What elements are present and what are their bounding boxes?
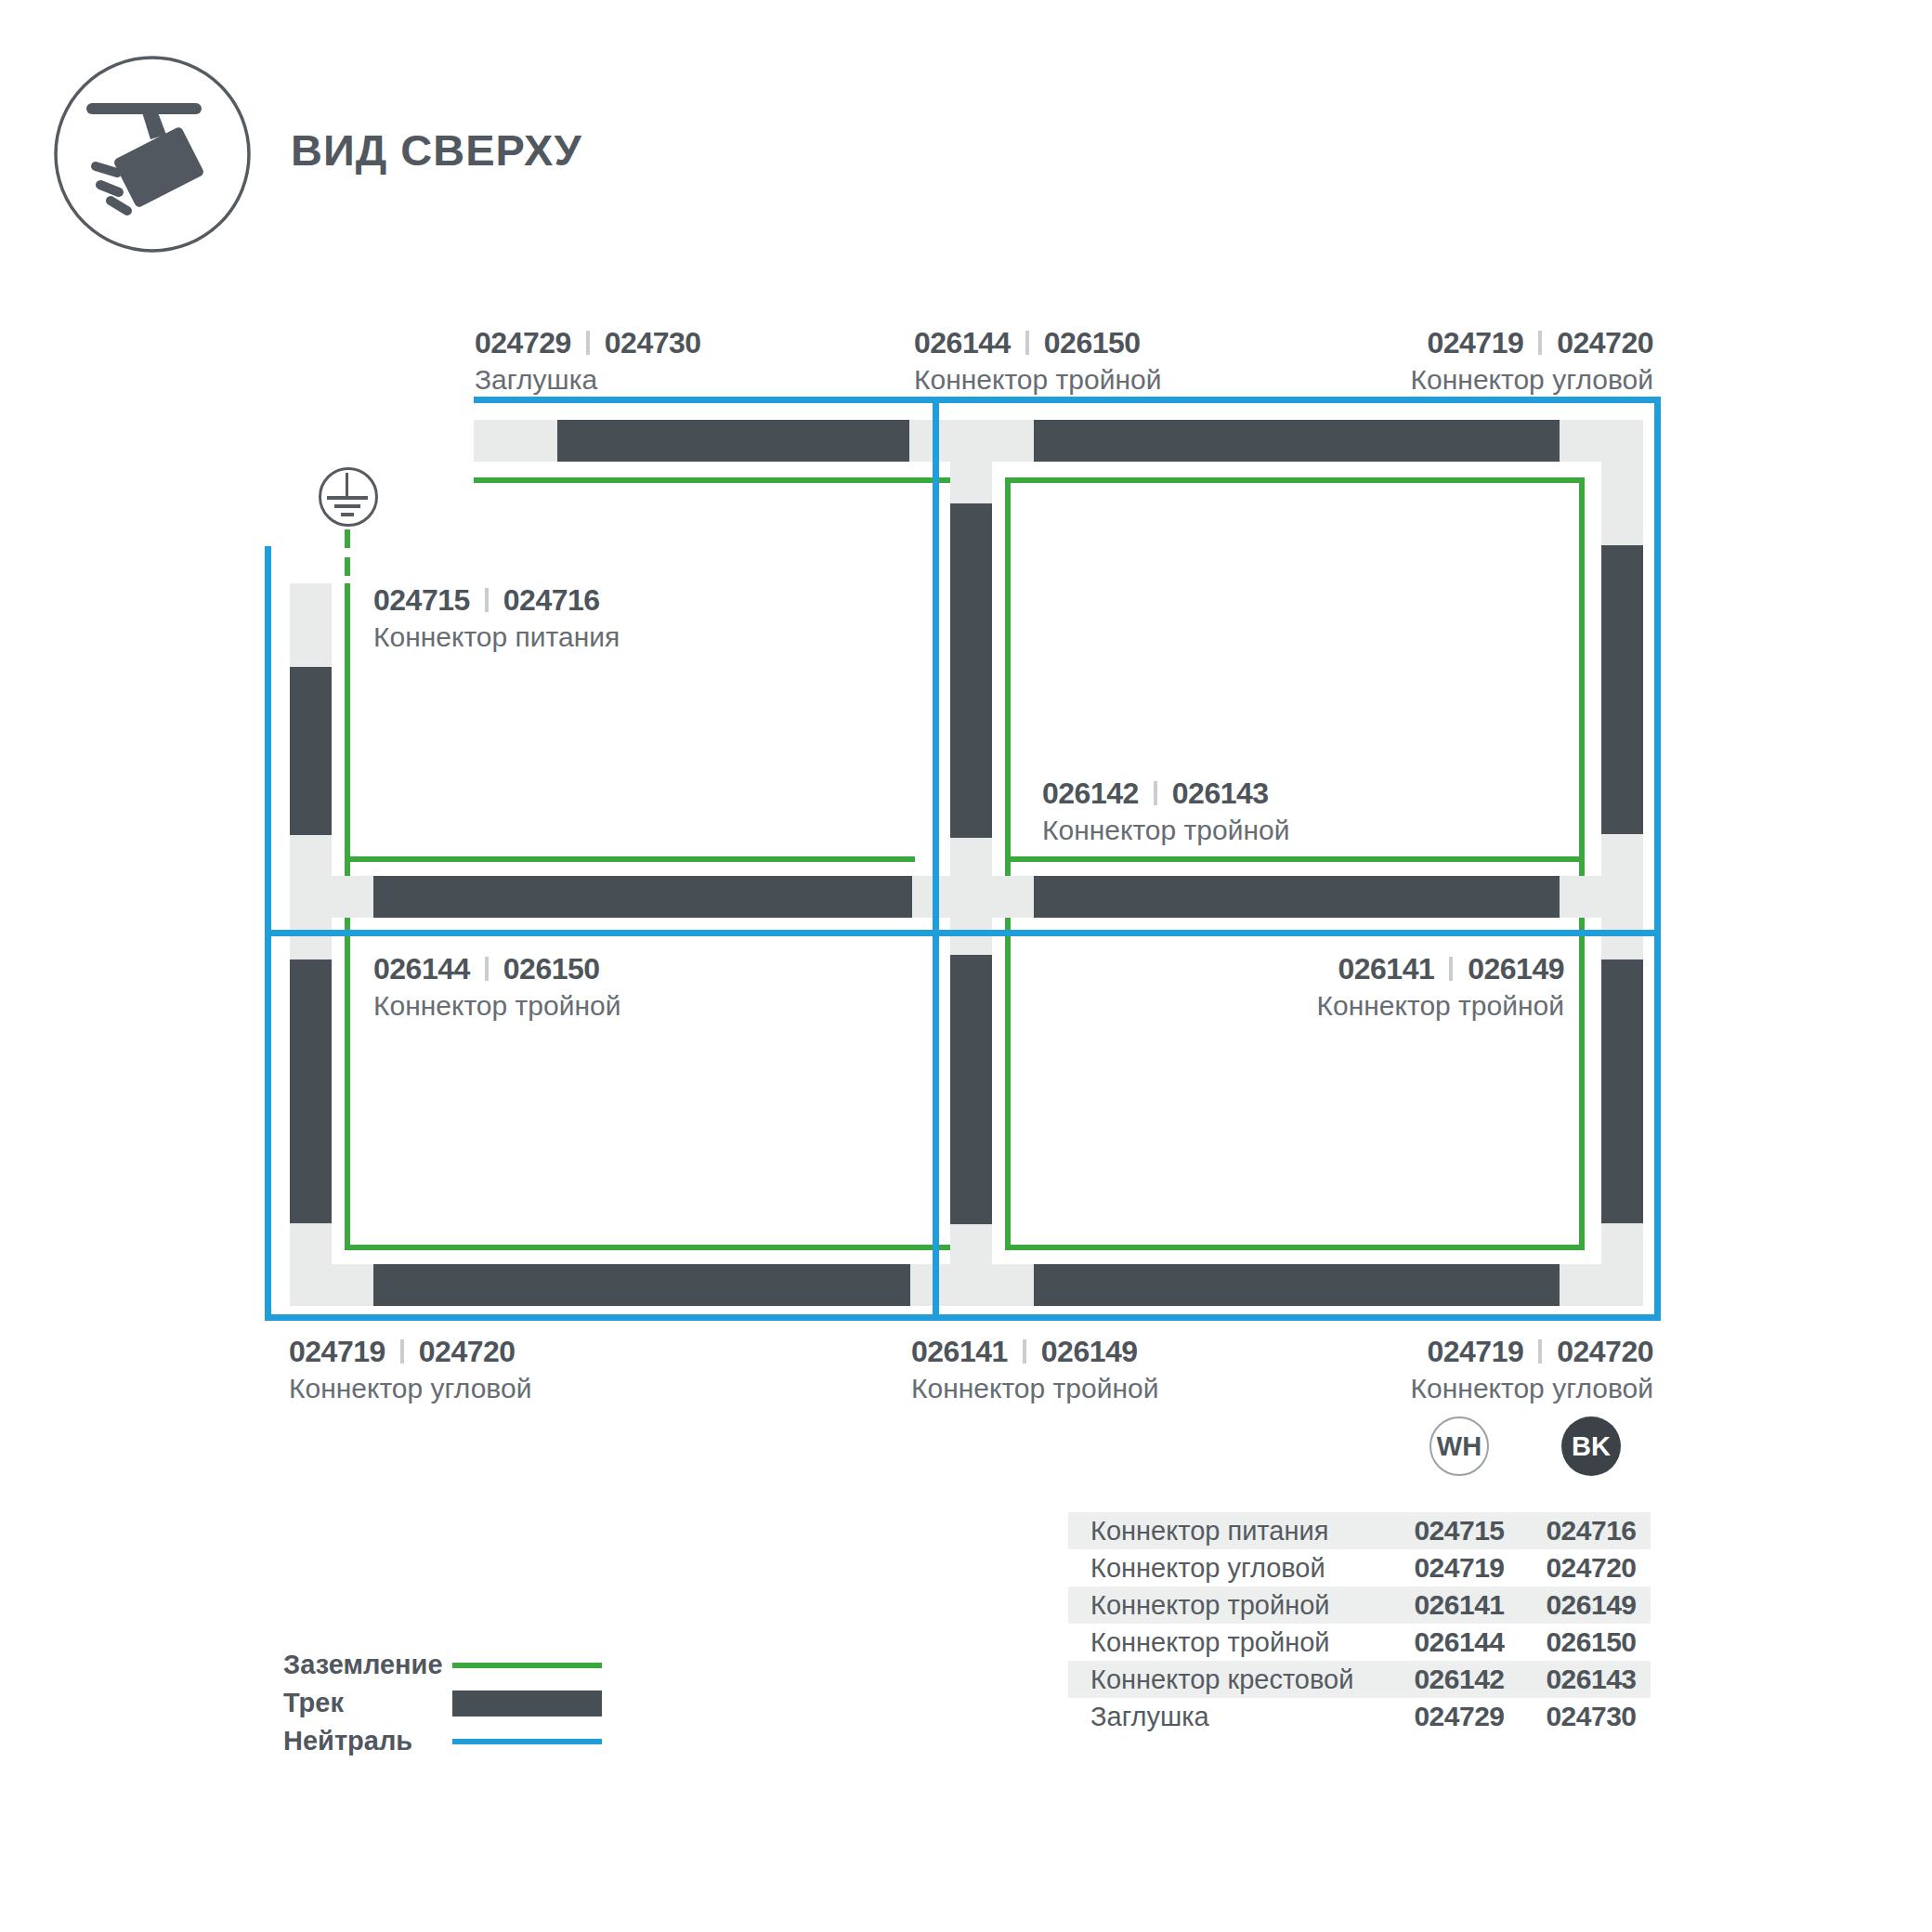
part-number-wh: 024715 (1403, 1512, 1515, 1549)
track-segment (557, 420, 909, 462)
neutral-line (1654, 397, 1661, 1321)
part-number-bk: 026150 (1535, 1624, 1647, 1661)
tee-connector (1601, 834, 1643, 959)
part-number-wh: 026142 (1403, 1661, 1515, 1698)
part-number: 026149 (1041, 1336, 1138, 1367)
power-feed-connector (290, 583, 332, 667)
part-number: 024720 (1557, 327, 1653, 359)
part-number: 024716 (503, 584, 600, 616)
label-tee-top: 026144026150 Коннектор тройной (914, 327, 1161, 395)
part-number: 024719 (1427, 327, 1523, 359)
ground-line (1008, 1245, 1585, 1250)
label-power-connector: 024715024716 Коннектор питания (373, 584, 620, 652)
legend-label: Нейтраль (283, 1726, 452, 1756)
label-tee-bottom: 026141026149 Коннектор тройной (911, 1336, 1158, 1403)
tee-connector (950, 1224, 992, 1264)
label-tee-right-mid: 026141026149 Коннектор тройной (1317, 953, 1564, 1021)
corner-connector (1560, 1264, 1643, 1306)
part-number-bk: 024720 (1535, 1549, 1647, 1586)
label-end-cap: 024729024730 Заглушка (475, 327, 701, 395)
divider (400, 1339, 404, 1364)
neutral-line (265, 1314, 1661, 1321)
track-segment (373, 1264, 910, 1306)
tee-connector (950, 462, 992, 503)
tee-connector (910, 1264, 1034, 1306)
track-segment (373, 876, 912, 918)
part-number-bk: 026149 (1535, 1586, 1647, 1624)
ground-line (1008, 477, 1585, 483)
table-row: Коннектор питания 024715 024716 (1068, 1512, 1651, 1549)
divider (586, 331, 590, 355)
end-cap-connector (474, 420, 557, 462)
neutral-line-swatch (452, 1739, 602, 1744)
page: ВИД СВЕРХУ 024729 (0, 0, 1932, 1932)
track-segment (950, 955, 992, 1224)
divider (1023, 1339, 1026, 1364)
part-name: Коннектор крестовой (1090, 1661, 1353, 1698)
part-number: 026144 (914, 327, 1011, 359)
part-name: Коннектор угловой (1411, 1374, 1653, 1403)
part-number-wh: 024719 (1403, 1549, 1515, 1586)
part-number-wh: 026144 (1403, 1624, 1515, 1661)
part-number: 026142 (1042, 777, 1139, 809)
part-name: Коннектор тройной (911, 1374, 1158, 1403)
part-number: 026149 (1468, 953, 1564, 985)
color-badge-black: BK (1561, 1416, 1621, 1476)
track-segment (950, 503, 992, 838)
part-number: 026141 (1338, 953, 1434, 985)
cross-connector (912, 876, 1034, 918)
divider (1538, 1339, 1542, 1364)
part-number: 024720 (1557, 1336, 1653, 1367)
part-number: 026141 (911, 1336, 1008, 1367)
ground-line (347, 1245, 953, 1250)
corner-connector (1601, 462, 1643, 545)
track-segment (290, 959, 332, 1223)
label-tee-left-mid: 026144026150 Коннектор тройной (373, 953, 620, 1021)
tee-connector (290, 835, 332, 959)
corner-connector (1560, 420, 1643, 462)
part-number-bk: 026143 (1535, 1661, 1647, 1698)
legend-item-neutral: Нейтраль (283, 1722, 602, 1760)
part-name: Коннектор угловой (289, 1374, 531, 1403)
ground-symbol-icon (319, 467, 378, 527)
part-number: 024720 (419, 1336, 516, 1367)
label-cross-center: 026142026143 Коннектор тройной (1042, 777, 1289, 845)
part-name: Заглушка (1090, 1698, 1209, 1735)
track-segment (1034, 876, 1560, 918)
part-number: 026150 (1044, 327, 1141, 359)
part-number: 024729 (475, 327, 571, 359)
label-corner-top-right: 024719024720 Коннектор угловой (1411, 327, 1653, 395)
track-segment (1034, 1264, 1560, 1306)
page-title: ВИД СВЕРХУ (291, 124, 582, 176)
part-name: Коннектор тройной (373, 991, 620, 1021)
divider (1154, 781, 1157, 805)
ground-line-swatch (452, 1663, 602, 1668)
track-segment (1034, 420, 1560, 462)
track-segment (1601, 959, 1643, 1223)
tee-connector (909, 420, 1034, 462)
legend-item-ground: Заземление (283, 1646, 602, 1684)
table-row: Коннектор крестовой 026142 026143 (1068, 1661, 1651, 1698)
ground-line-dash (345, 529, 350, 548)
part-number: 026144 (373, 953, 470, 985)
part-number: 024719 (1427, 1336, 1523, 1367)
ground-line (1579, 477, 1585, 1250)
track-segment (1601, 545, 1643, 834)
part-number: 026143 (1172, 777, 1269, 809)
table-row: Коннектор тройной 026144 026150 (1068, 1624, 1651, 1661)
neutral-line (265, 930, 1661, 936)
legend-label: Трек (283, 1688, 452, 1718)
divider (1538, 331, 1542, 355)
part-name: Коннектор угловой (1411, 365, 1653, 395)
neutral-line (474, 397, 1661, 403)
table-row: Заглушка 024729 024730 (1068, 1698, 1651, 1735)
part-name: Коннектор тройной (914, 365, 1161, 395)
track-swatch (452, 1690, 602, 1717)
ground-line (474, 477, 953, 483)
part-number: 024730 (605, 327, 701, 359)
ground-line (347, 856, 915, 862)
divider (485, 957, 489, 981)
corner-connector (290, 1264, 373, 1306)
neutral-line (933, 397, 939, 1321)
legend: Заземление Трек Нейтраль (283, 1646, 602, 1760)
part-name: Коннектор тройной (1090, 1586, 1330, 1624)
part-name: Коннектор угловой (1090, 1549, 1325, 1586)
part-name: Коннектор тройной (1042, 816, 1289, 845)
track-segment (290, 667, 332, 835)
part-number-wh: 024729 (1403, 1698, 1515, 1735)
track-light-icon (53, 55, 252, 254)
label-corner-bottom-left: 024719024720 Коннектор угловой (289, 1336, 531, 1403)
corner-connector (290, 1223, 332, 1264)
divider (1025, 331, 1029, 355)
part-name: Заглушка (475, 365, 701, 395)
table-row: Коннектор тройной 026141 026149 (1068, 1586, 1651, 1624)
tee-connector (1560, 876, 1601, 918)
legend-item-track: Трек (283, 1684, 602, 1722)
divider (1449, 957, 1453, 981)
divider (485, 588, 489, 612)
part-number-bk: 024716 (1535, 1512, 1647, 1549)
part-name: Коннектор тройной (1090, 1624, 1330, 1661)
part-number: 026150 (503, 953, 600, 985)
color-badge-white: WH (1429, 1416, 1489, 1476)
tee-connector (332, 876, 373, 918)
ground-line (1005, 477, 1011, 1250)
part-number-bk: 024730 (1535, 1698, 1647, 1735)
part-number: 024715 (373, 584, 470, 616)
ground-line-dash (345, 557, 350, 576)
part-name: Коннектор питания (373, 622, 620, 652)
ground-line (1008, 856, 1582, 862)
table-row: Коннектор угловой 024719 024720 (1068, 1549, 1651, 1586)
corner-connector (1601, 1223, 1643, 1264)
legend-label: Заземление (283, 1650, 452, 1680)
label-corner-bottom-right: 024719024720 Коннектор угловой (1411, 1336, 1653, 1403)
part-name: Коннектор тройной (1317, 991, 1564, 1021)
part-name: Коннектор питания (1090, 1512, 1328, 1549)
part-number-wh: 026141 (1403, 1586, 1515, 1624)
part-number: 024719 (289, 1336, 385, 1367)
neutral-line (265, 546, 271, 1321)
